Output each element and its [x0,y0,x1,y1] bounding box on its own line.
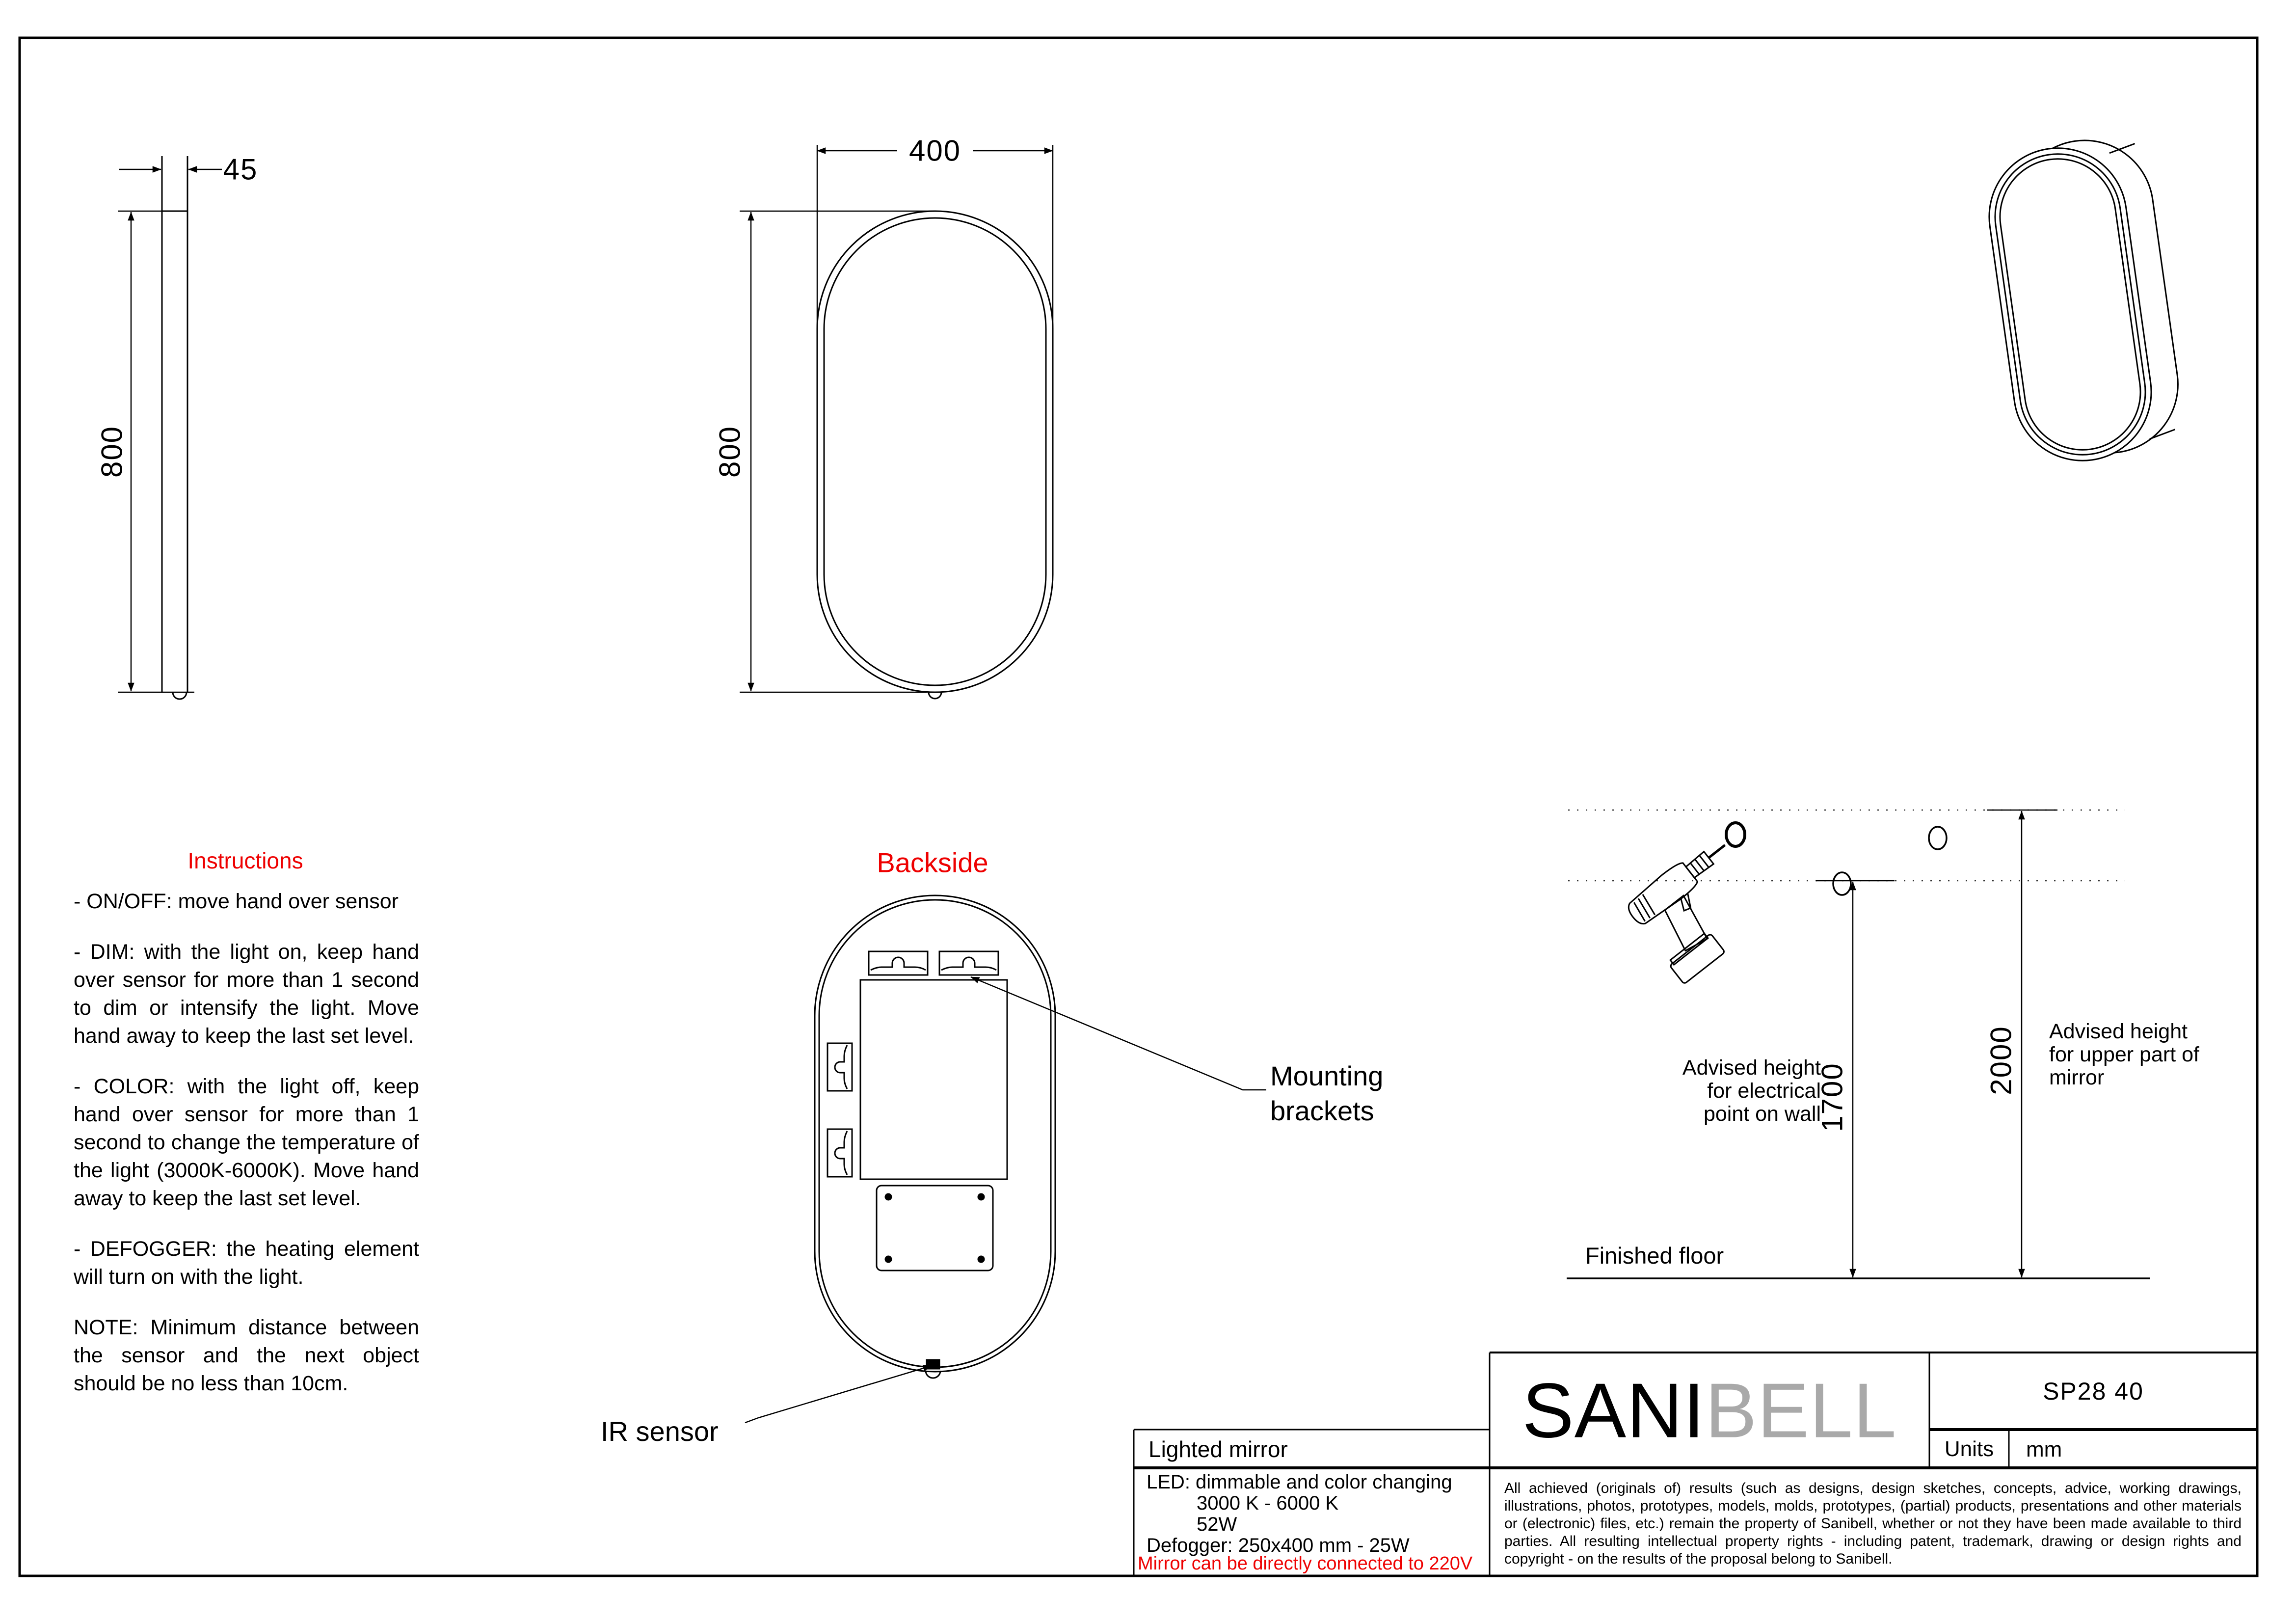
product-title: Lighted mirror [1148,1436,1288,1462]
front-view-drawing [740,145,1053,699]
side-width-dimension: 45 [223,153,258,187]
drill-hole-right [1929,827,1947,849]
instruction-item: - DEFOGGER: the heating element will tur… [74,1235,419,1291]
ir-leader-line [745,1366,932,1423]
instruction-item: - DIM: with the light on, keep hand over… [74,938,419,1050]
ir-sensor-label: IR sensor [601,1414,719,1449]
front-width-dimension: 400 [902,134,968,168]
brand-logo: SANIBELL [1522,1367,1896,1456]
front-ir-bump [929,692,941,699]
voltage-warning: Mirror can be directly connected to 220V [1138,1553,1472,1574]
side-height-dimension: 800 [95,426,129,478]
spec-line: LED: dimmable and color changing [1147,1472,1452,1493]
mounting-bracket-top-right [939,951,998,975]
mounting-bracket-side-lower [828,1129,852,1177]
driver-box [860,980,1007,1179]
instruction-item: - COLOR: with the light off, keep hand o… [74,1073,419,1213]
instruction-item: - ON/OFF: move hand over sensor [74,888,419,916]
mirror-height-dimension: 2000 [1984,1026,2018,1095]
legal-notice: All achieved (originals of) results (suc… [1504,1480,2242,1568]
instructions-title: Instructions [187,847,303,874]
backside-drawing [745,895,1266,1423]
front-height-dimension: 800 [713,421,747,483]
model-number: SP28 40 [2043,1377,2144,1406]
brand-logo-primary: SANI [1522,1368,1705,1454]
spec-line: 52W [1147,1514,1452,1535]
units-label: Units [1945,1437,1994,1461]
finished-floor-label: Finished floor [1585,1242,1724,1269]
instruction-item: NOTE: Minimum distance between the senso… [74,1314,419,1398]
drill-illustration [1623,833,1777,984]
spec-line: 3000 K - 6000 K [1147,1493,1452,1514]
mounting-brackets-label: Mounting brackets [1270,1058,1442,1128]
instructions-text: - ON/OFF: move hand over sensor - DIM: w… [74,888,419,1420]
mounting-bracket-side-upper [828,1043,852,1091]
electrical-height-label: Advised height for electrical point on w… [1659,1056,1821,1126]
units-value: mm [2026,1437,2062,1462]
mirror-height-label: Advised height for upper part of mirror [2049,1020,2211,1089]
drill-hole-center [1833,872,1851,895]
product-specs: LED: dimmable and color changing 3000 K … [1147,1472,1452,1556]
brand-logo-secondary: BELL [1705,1368,1897,1454]
side-ir-bump [173,692,187,699]
drill-hole-left [1726,823,1745,846]
side-view-drawing [118,156,222,699]
perspective-view-drawing [1980,132,2188,469]
mounting-leader-line [971,977,1266,1090]
mounting-bracket-top-left [869,951,928,975]
ir-sensor [926,1360,940,1378]
backside-title: Backside [877,847,988,879]
junction-box [877,1186,993,1271]
